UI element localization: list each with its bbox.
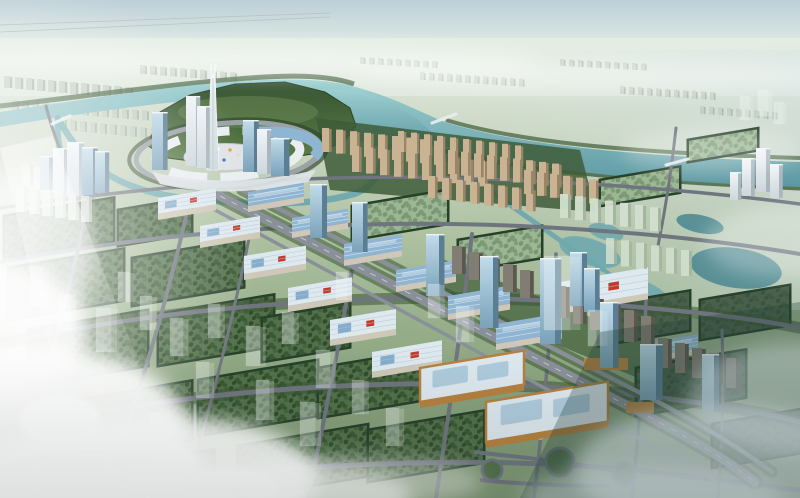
scene-svg [0,0,800,498]
city-aerial-render [0,0,800,498]
vignette [0,0,800,498]
